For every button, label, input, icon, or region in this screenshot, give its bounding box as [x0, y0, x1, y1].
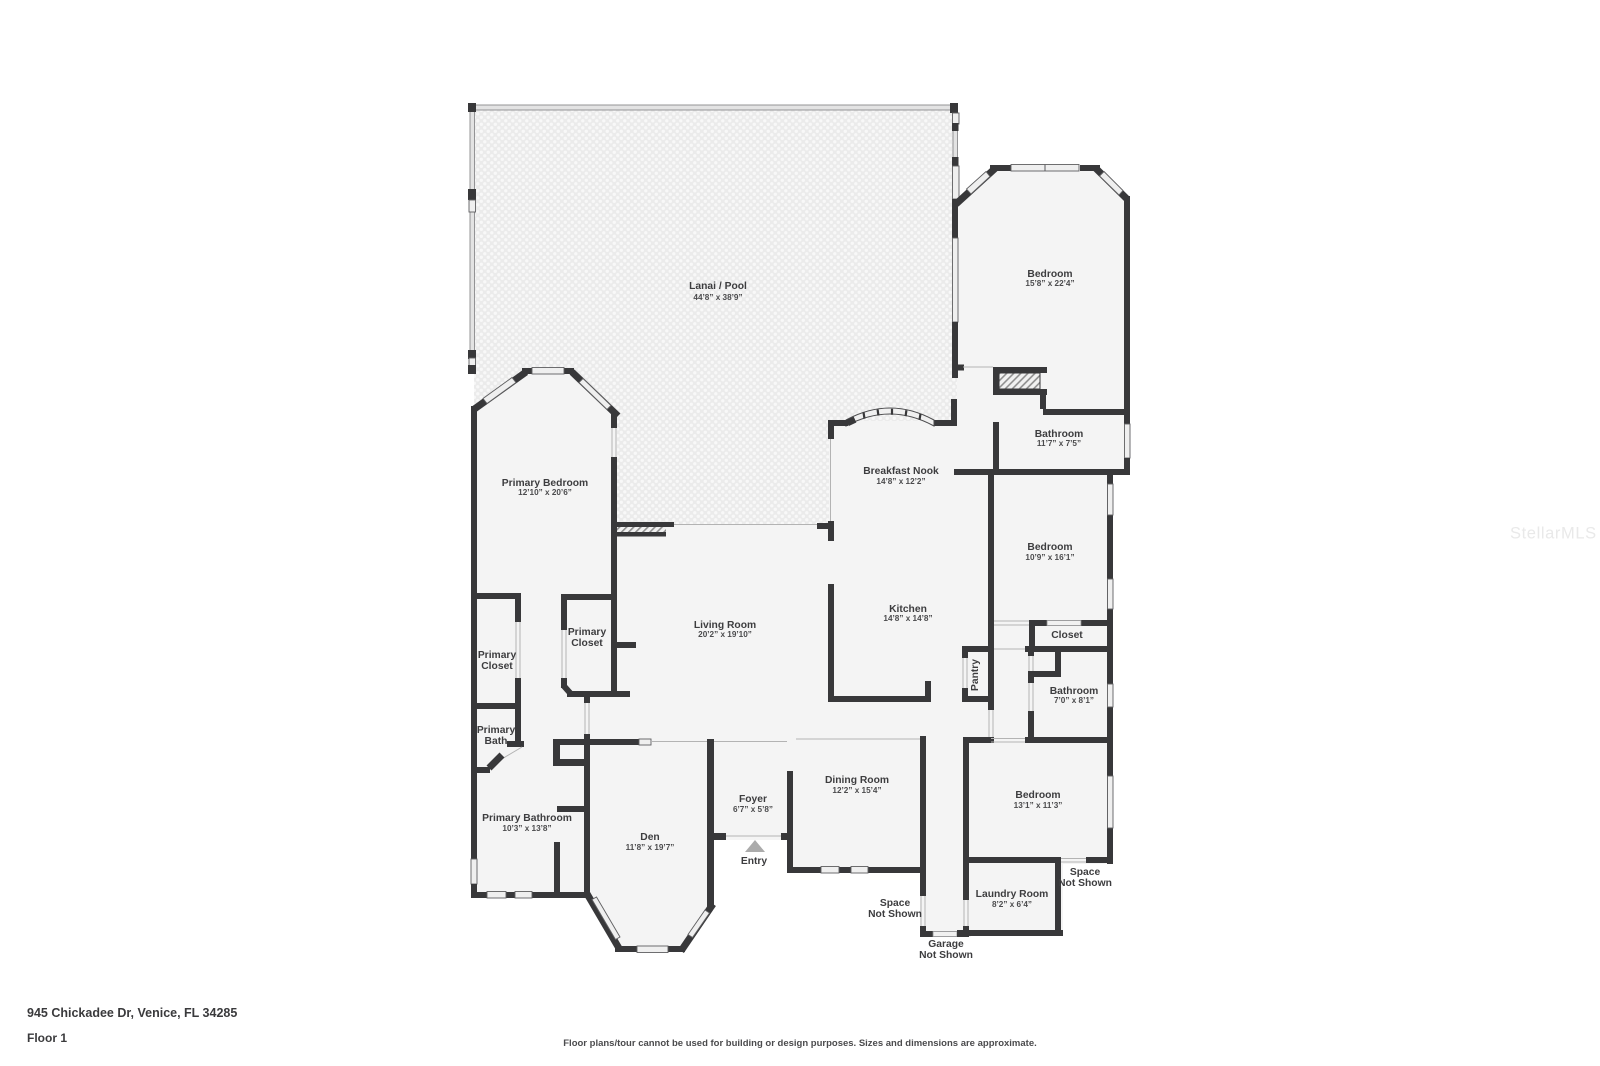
svg-text:14’8” x 12’2”: 14’8” x 12’2” — [876, 477, 925, 486]
svg-text:Not Shown: Not Shown — [919, 950, 973, 961]
svg-text:Primary: Primary — [477, 725, 516, 736]
svg-text:11’8” x 19’7”: 11’8” x 19’7” — [626, 843, 675, 852]
svg-text:945 Chickadee Dr, Venice, FL 3: 945 Chickadee Dr, Venice, FL 34285 — [27, 1006, 237, 1020]
svg-text:Entry: Entry — [741, 856, 768, 867]
svg-text:10’9” x 16’1”: 10’9” x 16’1” — [1025, 553, 1074, 562]
svg-text:15’8” x 22’4”: 15’8” x 22’4” — [1025, 279, 1074, 288]
svg-text:10’3” x 13’8”: 10’3” x 13’8” — [502, 824, 551, 833]
svg-text:12’2” x 15’4”: 12’2” x 15’4” — [832, 786, 881, 795]
svg-text:Breakfast Nook: Breakfast Nook — [863, 466, 939, 477]
svg-text:44’8” x 38’9”: 44’8” x 38’9” — [693, 293, 742, 302]
svg-text:Space: Space — [880, 898, 911, 909]
svg-text:11’7” x 7’5”: 11’7” x 7’5” — [1037, 439, 1081, 448]
svg-text:Primary Bathroom: Primary Bathroom — [482, 813, 572, 824]
svg-text:StellarMLS: StellarMLS — [1510, 525, 1597, 543]
svg-text:12’10” x 20’6”: 12’10” x 20’6” — [518, 488, 572, 497]
svg-text:Floor 1: Floor 1 — [27, 1031, 67, 1045]
svg-text:Primary: Primary — [478, 650, 517, 661]
svg-text:Bedroom: Bedroom — [1027, 542, 1072, 553]
svg-text:Foyer: Foyer — [739, 794, 767, 805]
svg-text:Laundry Room: Laundry Room — [976, 889, 1049, 900]
svg-text:Closet: Closet — [1051, 630, 1083, 641]
svg-text:14’8” x 14’8”: 14’8” x 14’8” — [883, 614, 932, 623]
svg-text:Pantry: Pantry — [970, 659, 981, 691]
svg-text:13’1” x 11’3”: 13’1” x 11’3” — [1014, 801, 1063, 810]
svg-text:Not Shown: Not Shown — [868, 909, 922, 920]
svg-text:Den: Den — [640, 832, 659, 843]
svg-text:Bath: Bath — [485, 736, 508, 747]
svg-text:Primary: Primary — [568, 627, 607, 638]
svg-text:Floor plans/tour cannot be use: Floor plans/tour cannot be used for buil… — [563, 1038, 1037, 1049]
svg-text:Closet: Closet — [481, 661, 513, 672]
svg-text:20’2” x 19’10”: 20’2” x 19’10” — [698, 630, 752, 639]
svg-text:Closet: Closet — [571, 638, 603, 649]
svg-text:Garage: Garage — [928, 939, 964, 950]
svg-text:Not Shown: Not Shown — [1058, 878, 1112, 889]
svg-text:Bedroom: Bedroom — [1015, 790, 1060, 801]
svg-text:8’2” x 6’4”: 8’2” x 6’4” — [992, 900, 1032, 909]
svg-text:Dining Room: Dining Room — [825, 775, 889, 786]
svg-text:7’0” x 8’1”: 7’0” x 8’1” — [1054, 696, 1094, 705]
svg-text:Space: Space — [1070, 867, 1101, 878]
svg-text:6’7” x 5’8”: 6’7” x 5’8” — [733, 805, 773, 814]
svg-text:Lanai / Pool: Lanai / Pool — [689, 281, 747, 292]
